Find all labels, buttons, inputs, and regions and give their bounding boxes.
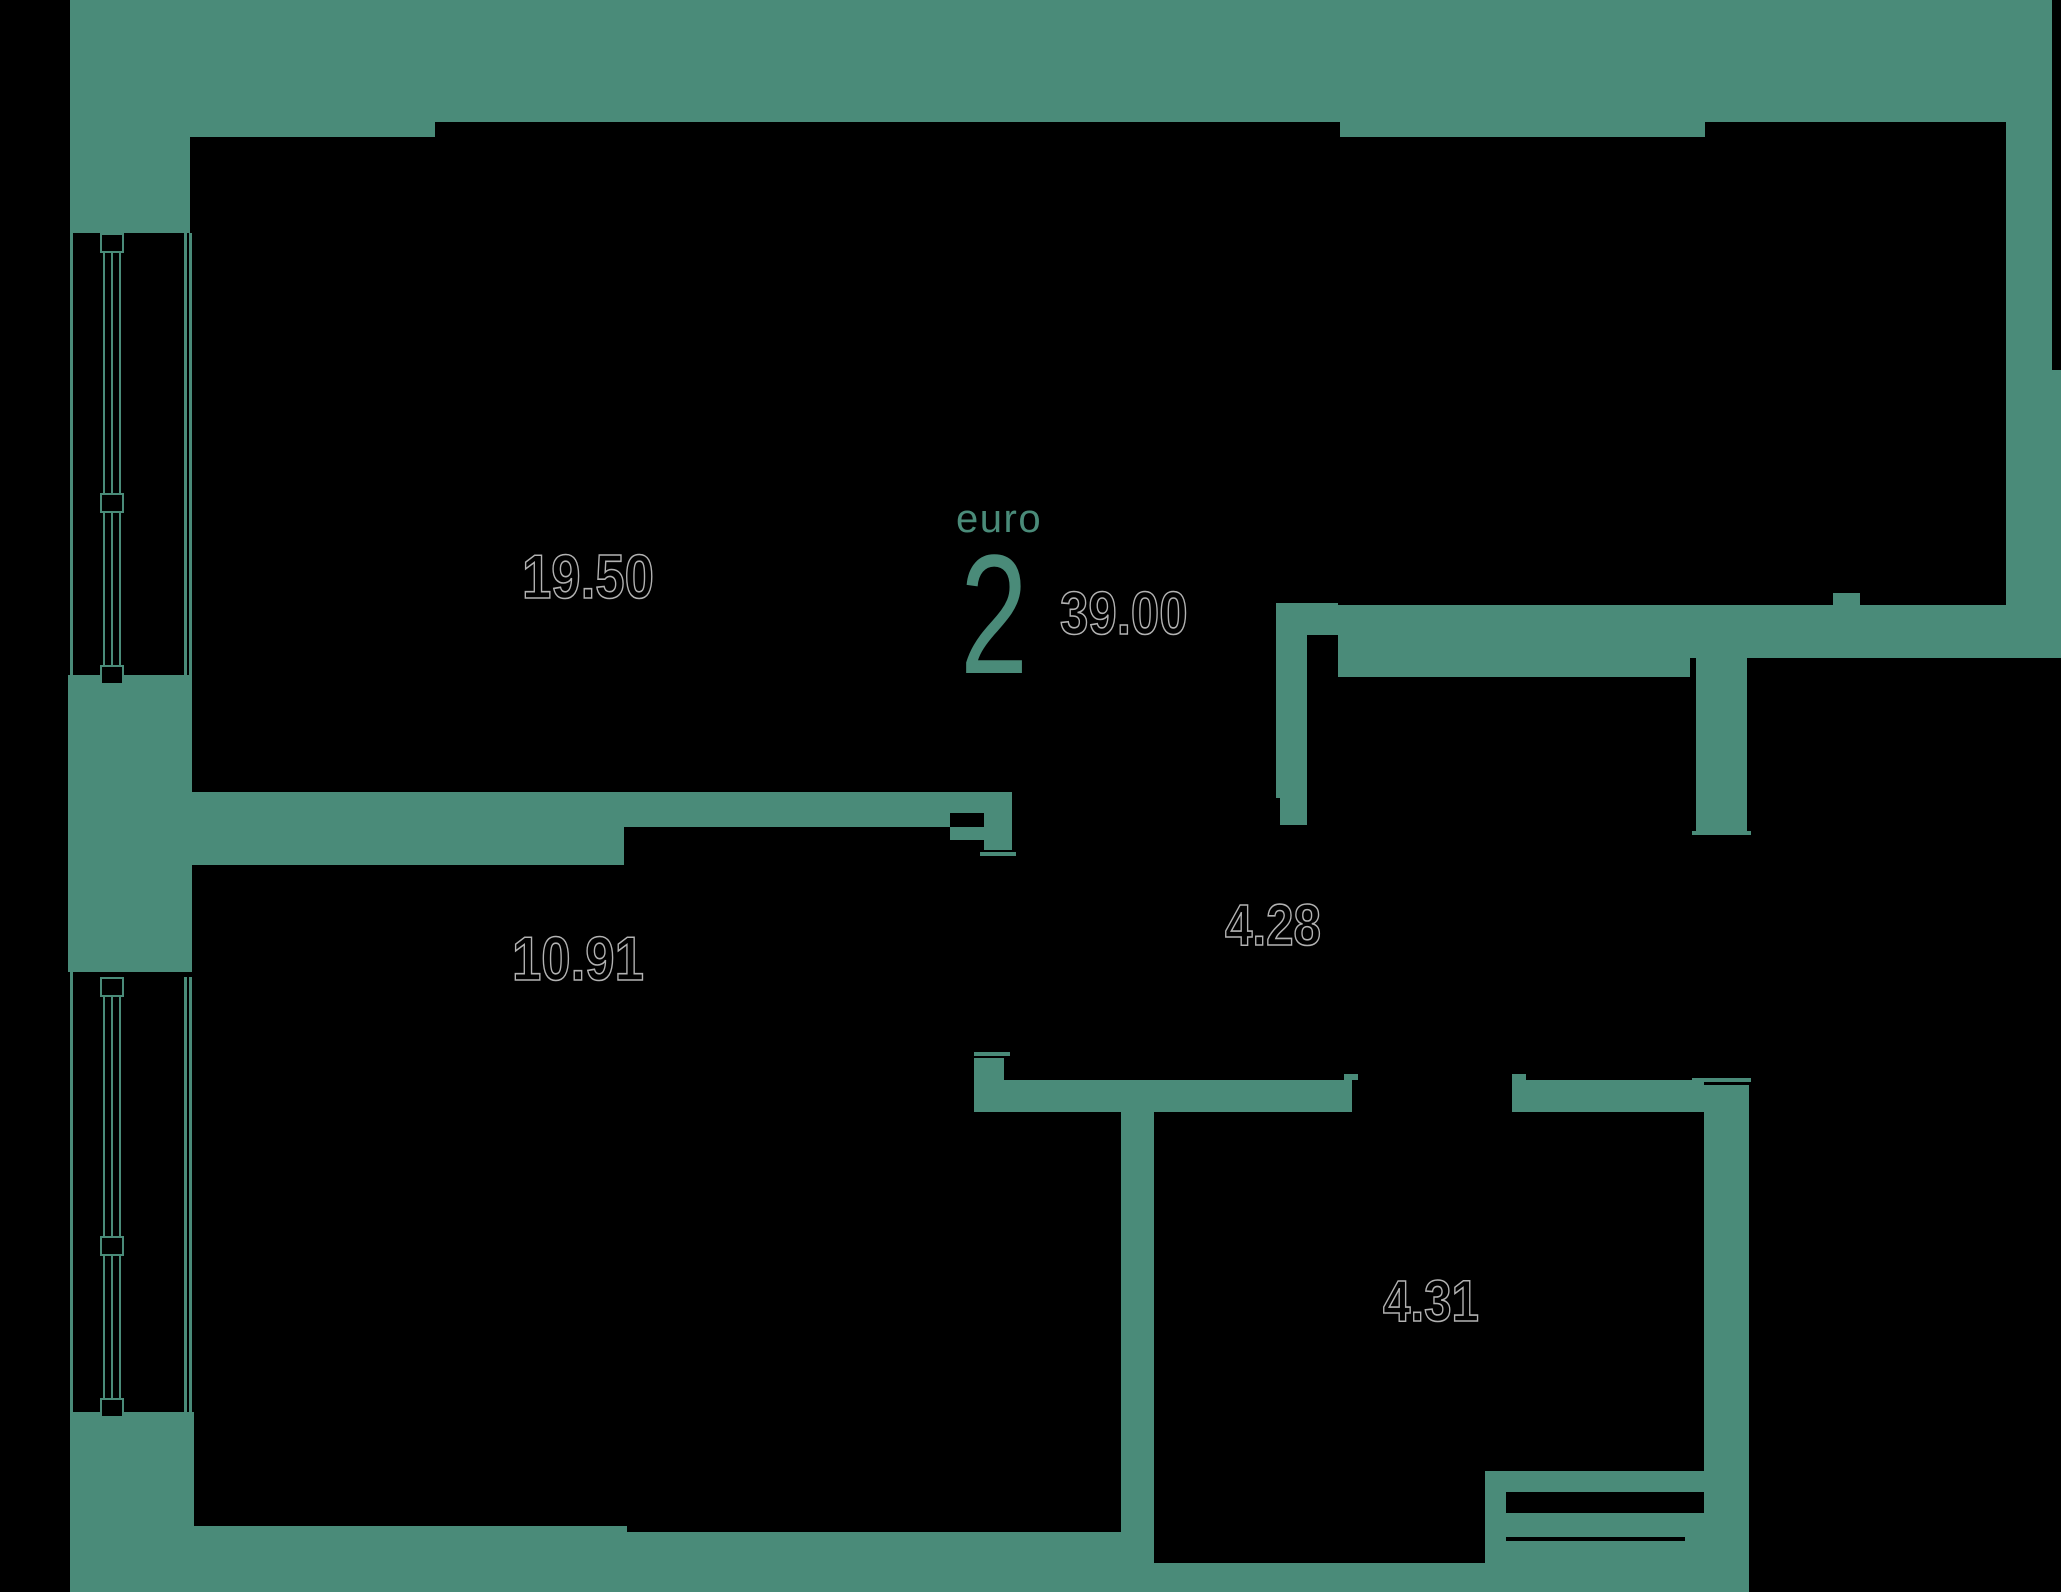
window-upper-inner-line-b (189, 233, 192, 675)
exterior-wall-right (2006, 0, 2052, 658)
unit-rooms-count: 2 (960, 530, 1028, 700)
bedroom-living-wall-thin (624, 792, 988, 827)
floor-plan: euro 2 39.00 19.50 10.91 4.28 4.31 (0, 0, 2061, 1592)
window-upper-glass-line (111, 244, 113, 674)
bedroom-door-jamb-top (980, 852, 1016, 856)
room-area-living: 19.50 (522, 547, 654, 609)
exterior-wall-top (190, 0, 2052, 122)
bathroom-right-wall (1704, 1085, 1749, 1592)
bathroom-fixture-inset (1527, 1492, 1688, 1513)
kitchen-partition-wall-deep (1338, 605, 1690, 677)
exterior-wall-top-thick-right (1340, 0, 1705, 137)
exterior-wall-left-middle-block (68, 675, 192, 972)
window-lower-sash-middle (100, 1236, 124, 1256)
bathroom-fixture-bar (1506, 1471, 1704, 1492)
living-hall-wall-connector (1276, 603, 1338, 635)
living-hall-wall-tail (1280, 798, 1307, 825)
exterior-wall-bottom-bathroom (1154, 1563, 1485, 1592)
kitchen-partition-bump (1833, 593, 1860, 606)
window-lower-inner-line-b (189, 977, 192, 1420)
bedroom-hall-wall-upper (984, 792, 1012, 850)
bathroom-door-jamb-left (1344, 1074, 1358, 1080)
exterior-wall-bottom-left-block (70, 1412, 194, 1592)
window-upper-sash-middle (100, 493, 124, 513)
exterior-wall-top-thick-left (190, 0, 435, 137)
bathroom-fixture-groove (1506, 1537, 1685, 1541)
exterior-wall-bottom-a (194, 1526, 627, 1592)
bedroom-door-jamb-bottom (974, 1052, 1010, 1056)
unit-total-area: 39.00 (1060, 584, 1188, 644)
bathroom-fixture-connector (1485, 1471, 1506, 1592)
bathroom-left-wall (1121, 1112, 1154, 1592)
hall-bathroom-wall (974, 1080, 1352, 1112)
hall-kitchen-wall (1696, 658, 1747, 831)
bedroom-living-wall (192, 792, 624, 865)
bedroom-living-wall-notch (950, 813, 984, 827)
window-upper-sash-bottom (100, 665, 124, 685)
window-upper-inner-line-a (184, 233, 187, 675)
window-lower-sash-bottom (100, 1398, 124, 1418)
window-lower-glass-line (111, 986, 113, 1410)
hall-kitchen-door-jamb-top (1692, 831, 1751, 835)
bathroom-door-jamb-right (1512, 1074, 1526, 1080)
bathroom-fixture-base (1506, 1513, 1704, 1592)
window-lower-sash-top (100, 977, 124, 997)
window-outer-line (70, 233, 73, 1412)
room-area-hallway: 4.28 (1225, 897, 1321, 955)
room-area-bathroom: 4.31 (1383, 1273, 1479, 1331)
room-area-bedroom: 10.91 (512, 929, 644, 991)
window-upper-sash-top (100, 233, 124, 253)
exterior-wall-bottom-b (627, 1532, 1154, 1592)
window-lower-inner-line-a (184, 977, 187, 1420)
hall-bathroom-wall-right (1512, 1080, 1704, 1112)
exterior-wall-top-left-block (70, 0, 190, 233)
